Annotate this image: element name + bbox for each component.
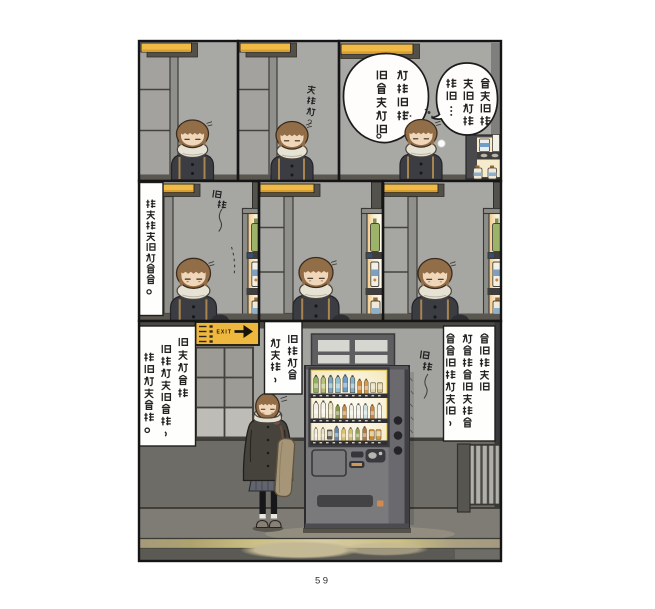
svg-text:59: 59 xyxy=(315,576,331,587)
svg-text:EXIT: EXIT xyxy=(217,330,233,336)
